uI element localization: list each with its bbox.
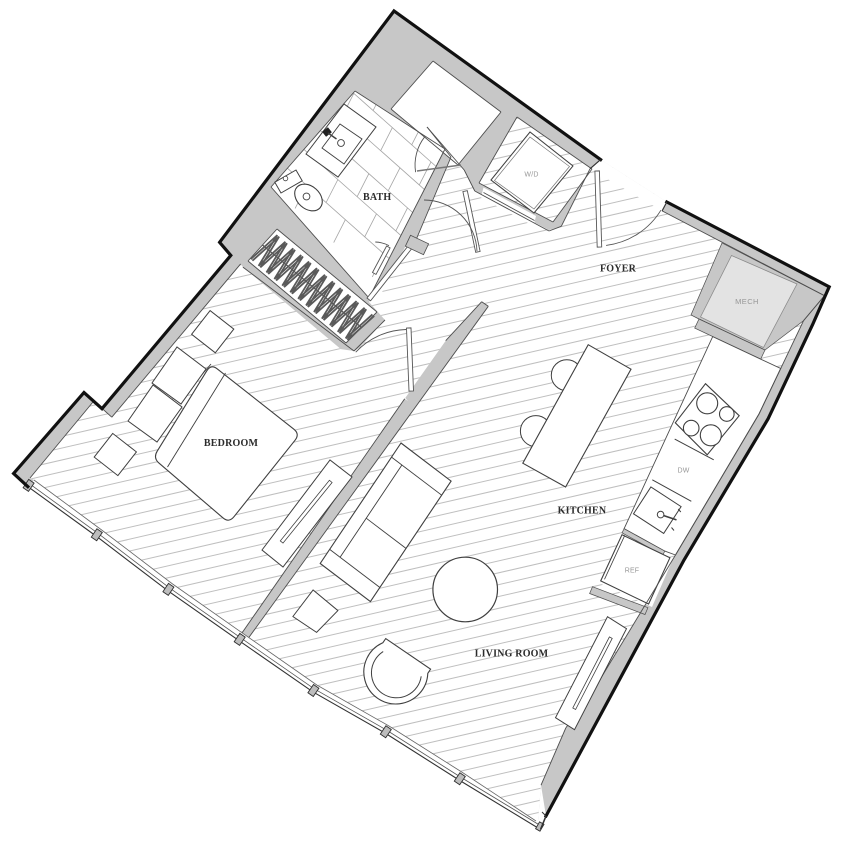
svg-text:BEDROOM: BEDROOM bbox=[204, 438, 259, 449]
svg-text:DW: DW bbox=[677, 467, 689, 474]
svg-text:W/D: W/D bbox=[524, 171, 538, 178]
svg-text:REF: REF bbox=[625, 567, 640, 574]
svg-text:FOYER: FOYER bbox=[600, 263, 637, 274]
svg-text:KITCHEN: KITCHEN bbox=[558, 505, 607, 516]
svg-text:MECH: MECH bbox=[735, 297, 759, 306]
svg-text:LIVING ROOM: LIVING ROOM bbox=[475, 649, 549, 660]
svg-text:BATH: BATH bbox=[363, 192, 391, 203]
